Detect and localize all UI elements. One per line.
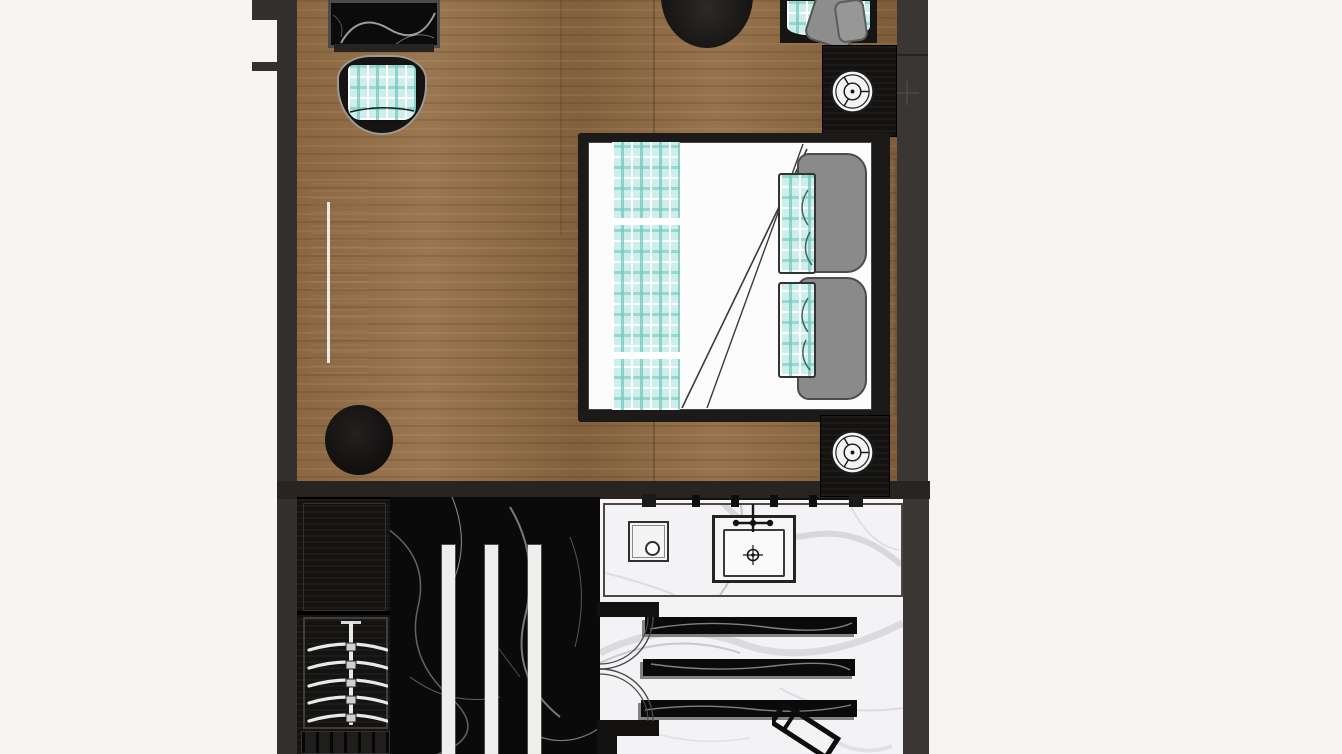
clothes-hangers-icon [303,617,388,729]
wall-hook [809,495,817,507]
chair-cushion-seam [347,66,417,126]
wall-cross-mark [906,81,908,105]
tv-screen-line [327,202,330,363]
door-handle-icon [772,692,892,754]
pillow-crease-lines [778,170,870,405]
wardrobe-drawers [301,731,390,754]
hook-rail-end [642,494,656,507]
shower-mat-stripe [442,545,455,754]
soap-circle [645,541,660,556]
table-lamp-icon [829,68,876,115]
hook-rail-end [849,494,863,507]
tv-console [311,183,368,382]
shower-mat-stripe [528,545,541,754]
floor-plan-canvas [0,0,1342,754]
left-wall-stub [252,0,277,20]
wardrobe-cabinet [303,503,386,611]
wardrobe-divider [297,611,390,615]
right-wall-bathroom [903,497,929,754]
wood-plank-seam [560,0,562,235]
wall-hook [692,495,700,507]
faucet-icon [727,501,787,565]
left-wall [277,0,297,754]
right-wall-bedroom [897,0,928,497]
left-wall-ledge [252,62,277,71]
table-lamp-icon [829,429,876,476]
right-wall-seam [897,54,928,56]
round-ottoman [325,405,393,475]
side-table-underframe [334,44,434,52]
hook-rail [642,498,863,500]
shower-mat-stripe [485,545,498,754]
black-marble-side-table [328,0,440,48]
gray-throw-fold [833,0,869,44]
double-door-swing-icon [560,598,700,754]
